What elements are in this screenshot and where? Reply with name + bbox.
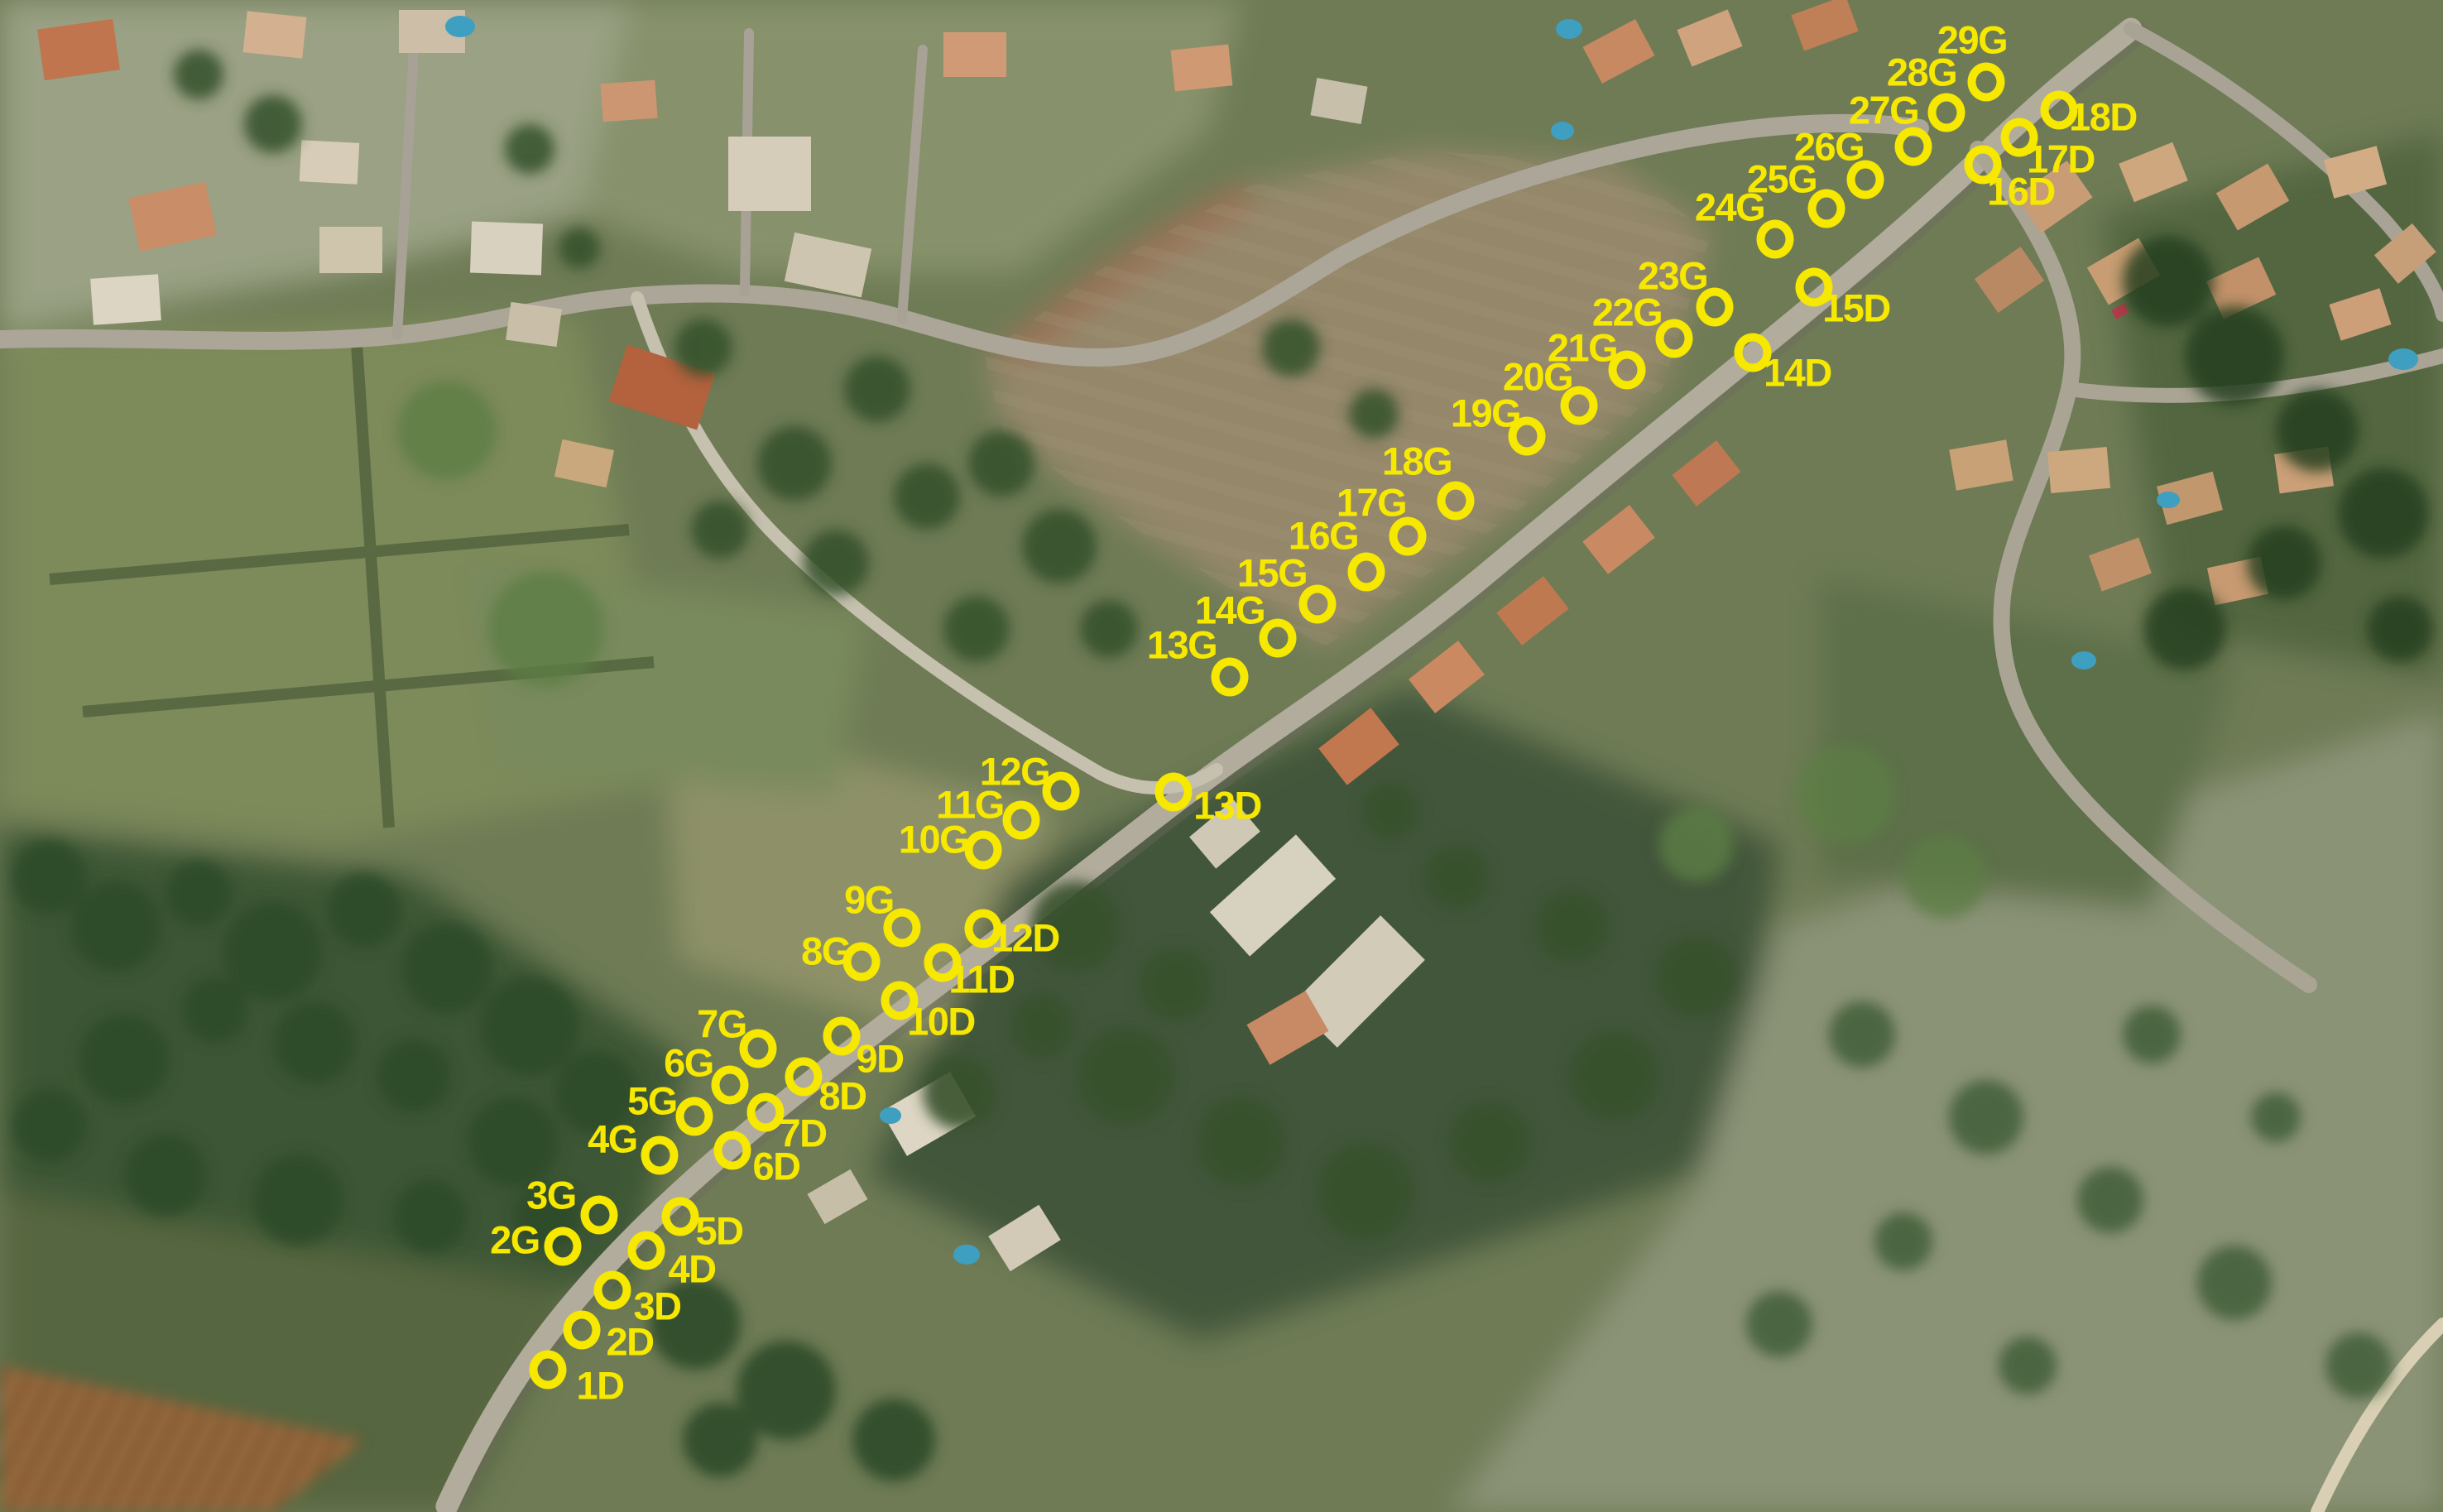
marker-label: 17D [2027, 140, 2095, 179]
marker-label: 9D [856, 1039, 903, 1078]
marker-circle-icon [712, 1066, 749, 1105]
marker-circle-icon [594, 1271, 631, 1310]
marker-label: 29G [1937, 21, 2007, 60]
marker-circle-icon [530, 1351, 567, 1390]
marker-circle-icon [823, 1017, 861, 1056]
marker-label: 2D [606, 1322, 653, 1361]
marker-label: 21G [1548, 329, 1617, 367]
marker-circle-icon [545, 1227, 582, 1266]
marker-label: 7D [779, 1114, 826, 1153]
marker-circle-icon [1928, 94, 1965, 132]
marker-circle-icon [662, 1198, 699, 1236]
marker-circle-icon [1260, 619, 1297, 658]
marker-circle-icon [564, 1311, 601, 1350]
marker-label: 14D [1764, 353, 1831, 392]
marker-label: 18G [1382, 442, 1452, 481]
marker-label: 5G [627, 1082, 677, 1121]
marker-label: 4G [588, 1120, 637, 1159]
marker-circle-icon [1895, 127, 1932, 166]
marker-label: 10D [907, 1002, 975, 1041]
marker-label: 26G [1794, 127, 1864, 166]
marker-circle-icon [1348, 553, 1385, 592]
marker-circle-icon [1212, 658, 1249, 697]
marker-circle-icon [628, 1231, 665, 1270]
marker-circle-icon [581, 1196, 618, 1235]
marker-label: 5D [695, 1212, 742, 1250]
marker-circle-icon [1968, 63, 2005, 102]
marker-label: 15D [1822, 289, 1890, 328]
marker-circle-icon [676, 1097, 713, 1136]
marker-label: 11D [948, 960, 1014, 999]
marker-label: 17G [1337, 483, 1406, 522]
marker-label: 9G [844, 881, 894, 919]
marker-label: 23G [1638, 257, 1707, 295]
satellite-map: 2G 3G 4G 5G 6G 7G 8G [0, 0, 2443, 1512]
markers-layer: 2G 3G 4G 5G 6G 7G 8G [0, 0, 2443, 1512]
marker-circle-icon [965, 831, 1002, 870]
marker-label: 13D [1193, 786, 1261, 825]
marker-label: 19G [1451, 394, 1520, 433]
marker-circle-icon [1155, 773, 1193, 812]
marker-circle-icon [1437, 482, 1475, 521]
marker-circle-icon [785, 1058, 823, 1097]
marker-label: 27G [1849, 91, 1918, 130]
marker-label: 12G [980, 752, 1049, 791]
marker-circle-icon [641, 1136, 679, 1175]
marker-label: 8G [801, 932, 851, 971]
marker-label: 12D [991, 919, 1059, 958]
marker-label: 15G [1237, 554, 1307, 593]
marker-label: 18D [2069, 98, 2137, 137]
marker-label: 3D [633, 1287, 680, 1326]
marker-label: 1D [576, 1366, 623, 1405]
marker-label: 14G [1195, 591, 1265, 630]
marker-circle-icon [714, 1131, 751, 1170]
marker-label: 3G [526, 1176, 576, 1215]
marker-circle-icon [1003, 801, 1040, 840]
marker-label: 22G [1592, 293, 1662, 332]
marker-label: 6G [664, 1044, 713, 1082]
marker-label: 4D [668, 1250, 715, 1289]
marker-label: 2G [490, 1221, 540, 1260]
marker-label: 8D [818, 1077, 866, 1116]
marker-label: 7G [697, 1005, 746, 1044]
